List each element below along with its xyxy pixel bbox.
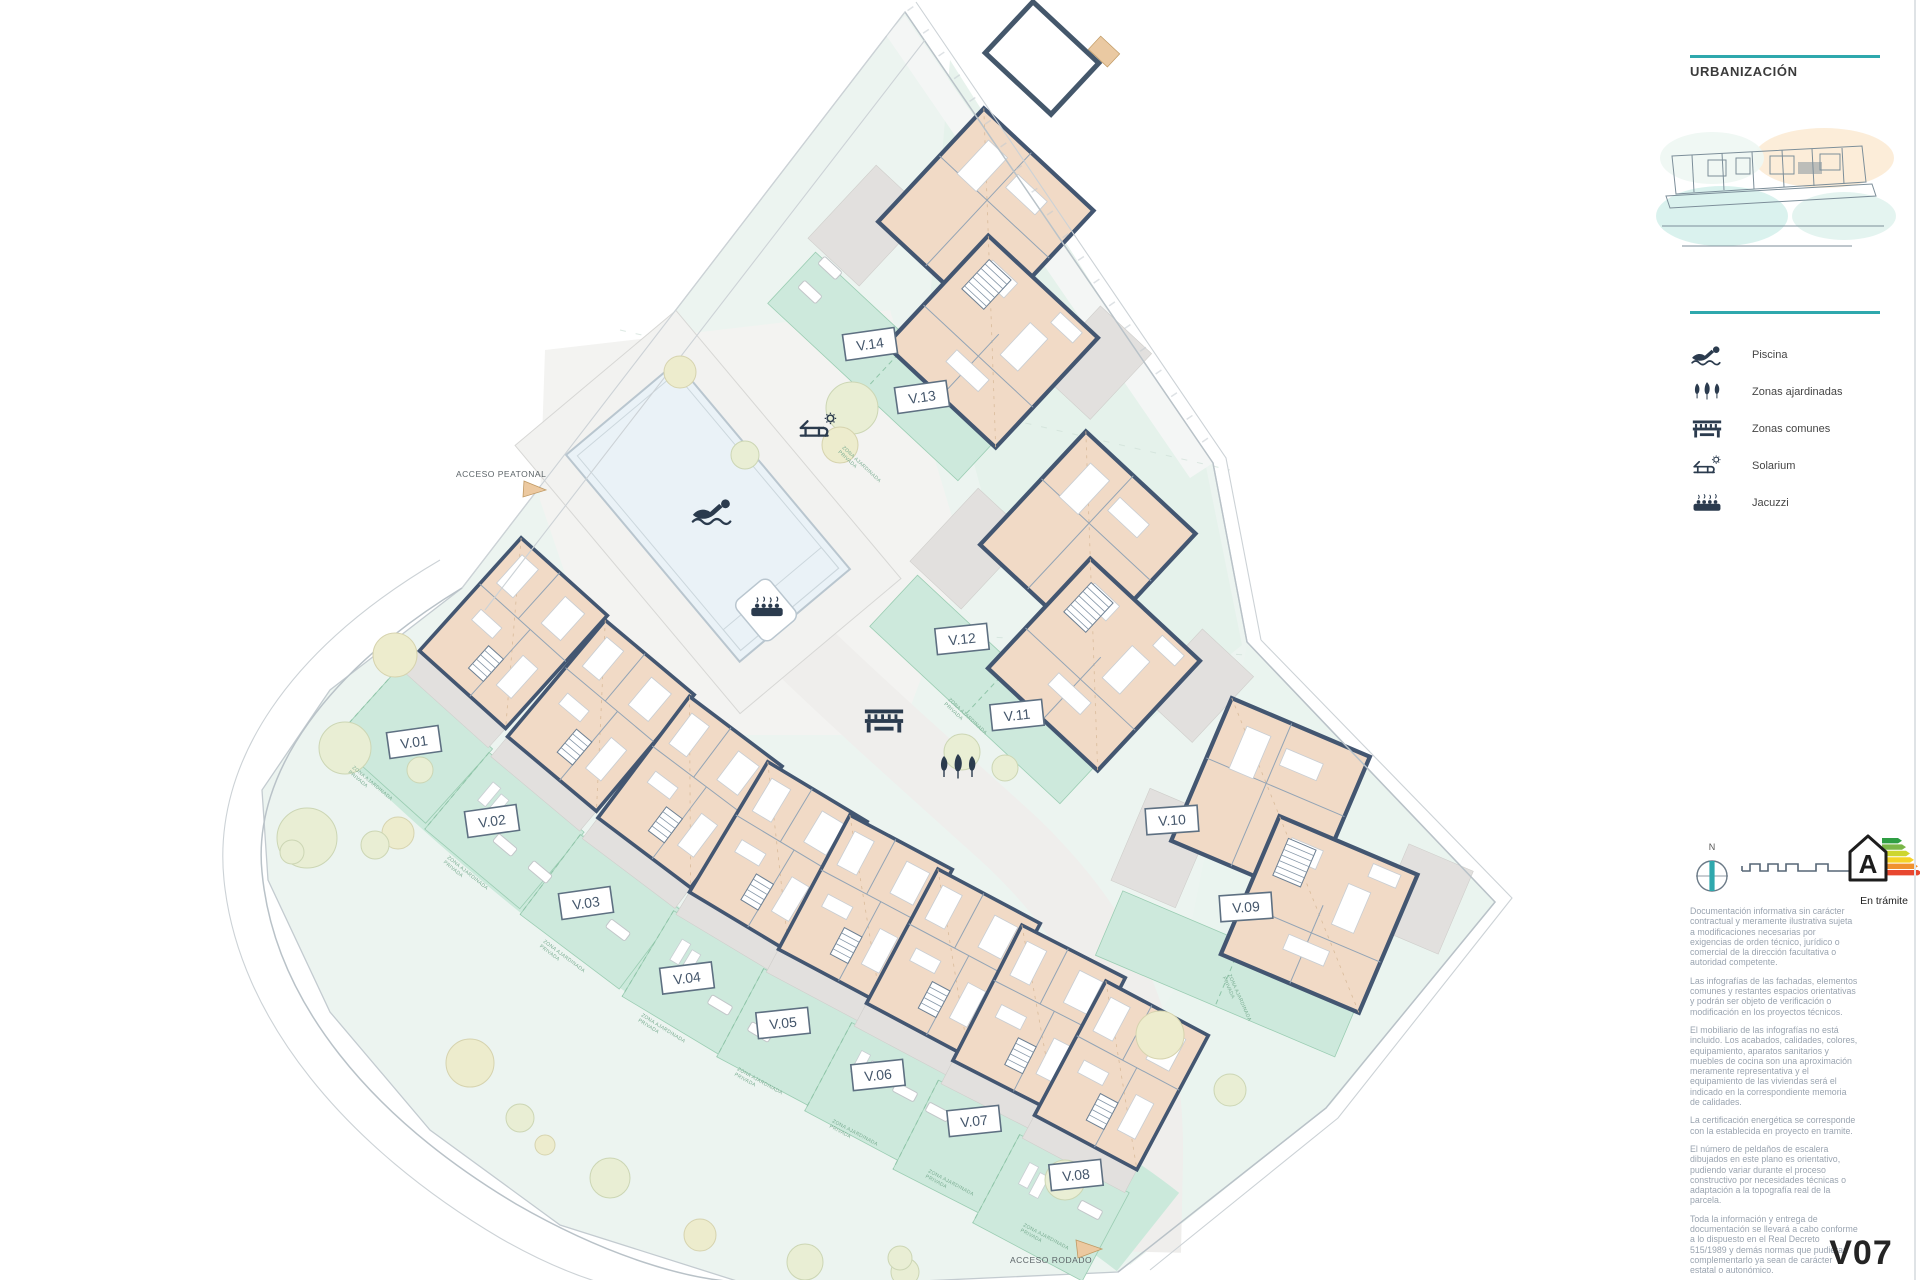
tree bbox=[407, 757, 433, 783]
legend-item-solarium: Solarium bbox=[1690, 447, 1890, 484]
svg-text:V.11: V.11 bbox=[1003, 706, 1031, 725]
disclaimer-paragraph: Documentación informativa sin carácter c… bbox=[1690, 906, 1858, 968]
villa-label-v12: V.12 bbox=[935, 623, 989, 654]
legend-item-zonas-ajardinadas: Zonas ajardinadas bbox=[1690, 373, 1890, 410]
legend-label: Zonas comunes bbox=[1752, 423, 1830, 435]
disclaimer-text: Documentación informativa sin carácter c… bbox=[1690, 906, 1858, 1280]
svg-text:V.07: V.07 bbox=[959, 1112, 988, 1131]
svg-text:V.04: V.04 bbox=[672, 968, 701, 987]
panel-rule-mid bbox=[1690, 311, 1880, 314]
panel-rule-top bbox=[1690, 55, 1880, 58]
tree bbox=[446, 1039, 494, 1087]
svg-text:V.09: V.09 bbox=[1232, 898, 1261, 916]
legend-item-zonas-comunes: Zonas comunes bbox=[1690, 410, 1890, 447]
villa-label-v06: V.06 bbox=[851, 1059, 905, 1090]
disclaimer-paragraph: La certificación energética se correspon… bbox=[1690, 1115, 1858, 1136]
tree bbox=[992, 755, 1018, 781]
energy-certificate: A En trámite bbox=[1842, 832, 1920, 907]
tree bbox=[664, 356, 696, 388]
svg-text:V.06: V.06 bbox=[863, 1066, 892, 1085]
panel-title: URBANIZACIÓN bbox=[1690, 64, 1798, 79]
sun-lounger-icon bbox=[1690, 454, 1724, 478]
tree bbox=[1214, 1074, 1246, 1106]
bench-icon bbox=[1690, 417, 1724, 441]
north-compass: N bbox=[1692, 840, 1736, 902]
tree bbox=[361, 831, 389, 859]
panel-divider bbox=[1914, 0, 1916, 1280]
site-plan: ZONA AJARDINADAPRIVADAZONA AJARDINADAPRI… bbox=[0, 0, 1660, 1280]
access-pedestrian: ACCESO PEATONAL bbox=[456, 469, 546, 497]
jacuzzi-icon bbox=[1690, 491, 1724, 515]
villa-label-v07: V.07 bbox=[947, 1105, 1001, 1136]
tree bbox=[1136, 1011, 1184, 1059]
legend: PiscinaZonas ajardinadasZonas comunesSol… bbox=[1690, 336, 1890, 521]
access-pedestrian-label: ACCESO PEATONAL bbox=[456, 469, 546, 479]
tree bbox=[731, 441, 759, 469]
villa-label-v05: V.05 bbox=[756, 1007, 810, 1038]
tree bbox=[506, 1104, 534, 1132]
disclaimer-paragraph: El mobiliario de las infografías no está… bbox=[1690, 1025, 1858, 1107]
tree bbox=[280, 840, 304, 864]
tree bbox=[888, 1246, 912, 1270]
villa-label-v11: V.11 bbox=[990, 699, 1044, 730]
svg-text:V.05: V.05 bbox=[768, 1014, 797, 1033]
tree bbox=[826, 382, 878, 434]
disclaimer-paragraph: El número de peldaños de escalera dibuja… bbox=[1690, 1144, 1858, 1206]
tree bbox=[590, 1158, 630, 1198]
villa-label-v08: V.08 bbox=[1049, 1159, 1103, 1190]
sheet-code: V07 bbox=[1806, 1234, 1916, 1273]
garden-trees-icon bbox=[1690, 380, 1724, 404]
villa-label-v10: V.10 bbox=[1145, 805, 1199, 835]
disclaimer-paragraph: Las infografías de las fachadas, element… bbox=[1690, 976, 1858, 1017]
legend-label: Solarium bbox=[1752, 460, 1795, 472]
svg-text:V.12: V.12 bbox=[947, 630, 976, 649]
tree bbox=[535, 1135, 555, 1155]
tree bbox=[787, 1244, 823, 1280]
svg-text:V.10: V.10 bbox=[1158, 811, 1187, 829]
energy-letter: A bbox=[1859, 849, 1878, 879]
tree bbox=[684, 1219, 716, 1251]
svg-text:V.08: V.08 bbox=[1061, 1166, 1090, 1185]
entrance-structure bbox=[985, 0, 1119, 120]
swimmer-icon bbox=[1690, 343, 1724, 367]
north-label: N bbox=[1709, 842, 1716, 852]
tree bbox=[319, 722, 371, 774]
building-render-thumbnail bbox=[1652, 96, 1900, 278]
villa-label-v04: V.04 bbox=[660, 962, 715, 994]
villa-label-v09: V.09 bbox=[1219, 892, 1273, 922]
legend-label: Jacuzzi bbox=[1752, 497, 1789, 509]
tree bbox=[373, 633, 417, 677]
legend-item-jacuzzi: Jacuzzi bbox=[1690, 484, 1890, 521]
legend-label: Zonas ajardinadas bbox=[1752, 386, 1843, 398]
legend-item-piscina: Piscina bbox=[1690, 336, 1890, 373]
plan-sheet: ZONA AJARDINADAPRIVADAZONA AJARDINADAPRI… bbox=[0, 0, 1920, 1280]
legend-label: Piscina bbox=[1752, 349, 1787, 361]
